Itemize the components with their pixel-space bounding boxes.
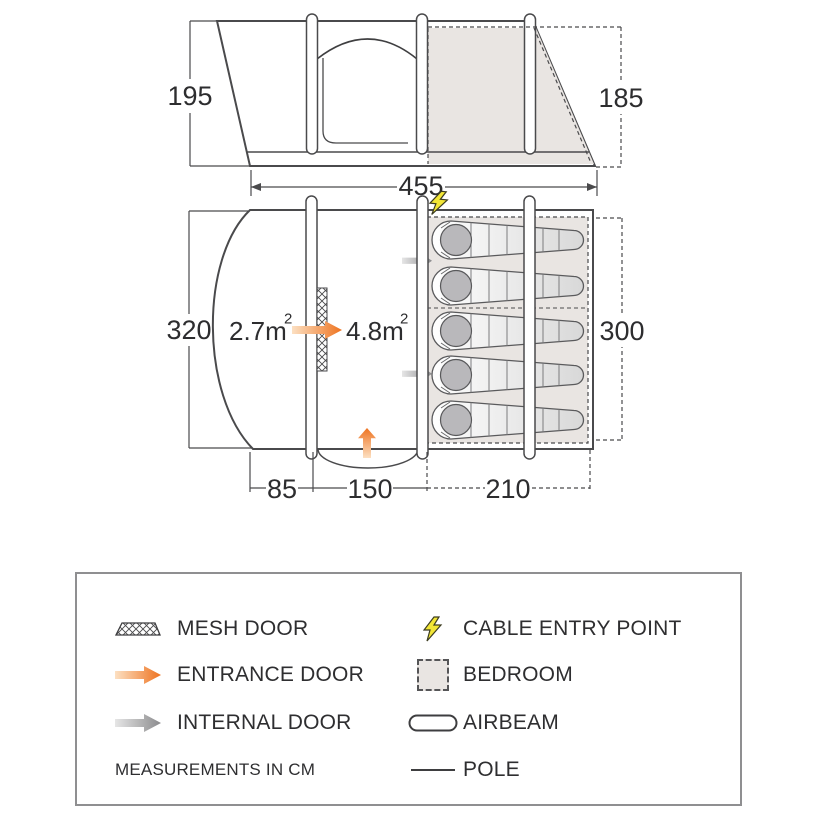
legend-item-mesh-door: MESH DOOR	[115, 612, 308, 646]
mesh-door-icon	[115, 622, 161, 637]
living-area-label: 2.7m 2	[229, 311, 292, 347]
floorplan-view: 2.7m 2 4.8m 2 320 300	[166, 190, 644, 504]
bedroom-area-label: 4.8m 2	[346, 311, 408, 347]
dim-label-85: 85	[267, 474, 297, 504]
legend-label: AIRBEAM	[463, 711, 559, 735]
legend-note: MEASUREMENTS IN CM	[115, 753, 315, 787]
legend-label: MESH DOOR	[177, 617, 308, 641]
dim-label-210: 210	[485, 474, 530, 504]
legend: MESH DOOR ENTRANCE DOOR	[75, 572, 742, 806]
side-bedroom-area	[428, 28, 594, 164]
tent-floorplan-diagram: 195 185 455	[0, 0, 818, 818]
diagram-canvas: 195 185 455	[0, 0, 818, 560]
internal-door-icon	[115, 713, 161, 733]
legend-item-entrance-door: ENTRANCE DOOR	[115, 658, 364, 692]
dim-bedroom-depth: 300	[596, 218, 645, 440]
svg-text:2: 2	[284, 311, 292, 328]
dim-label-185: 185	[598, 83, 643, 113]
legend-item-airbeam: AIRBEAM	[407, 706, 559, 740]
dim-label-320: 320	[166, 315, 211, 345]
svg-text:2: 2	[400, 311, 408, 328]
legend-item-cable-entry: CABLE ENTRY POINT	[407, 612, 682, 646]
cable-entry-point-icon	[407, 616, 459, 643]
measurements-note: MEASUREMENTS IN CM	[115, 760, 315, 780]
legend-label: BEDROOM	[463, 663, 573, 687]
legend-label: ENTRANCE DOOR	[177, 663, 364, 687]
legend-label: CABLE ENTRY POINT	[463, 617, 682, 641]
legend-item-internal-door: INTERNAL DOOR	[115, 706, 352, 740]
airbeam-pole	[524, 196, 535, 459]
airbeam-pole	[525, 14, 536, 154]
svg-text:4.8m: 4.8m	[346, 316, 404, 346]
airbeam-pole	[307, 14, 318, 154]
pole-icon	[407, 769, 459, 771]
svg-text:2.7m: 2.7m	[229, 316, 287, 346]
dim-label-195: 195	[167, 81, 212, 111]
legend-item-bedroom: BEDROOM	[407, 658, 573, 692]
legend-label: INTERNAL DOOR	[177, 711, 352, 735]
airbeam-pole	[417, 14, 428, 154]
legend-item-pole: POLE	[407, 753, 520, 787]
dim-label-150: 150	[347, 474, 392, 504]
airbeam-pole	[417, 196, 428, 459]
entrance-door-icon	[115, 665, 161, 685]
bedroom-icon	[407, 659, 459, 691]
legend-label: POLE	[463, 758, 520, 782]
dim-label-300: 300	[599, 316, 644, 346]
airbeam-icon	[407, 714, 459, 732]
side-elevation-view: 195 185 455	[167, 14, 643, 201]
